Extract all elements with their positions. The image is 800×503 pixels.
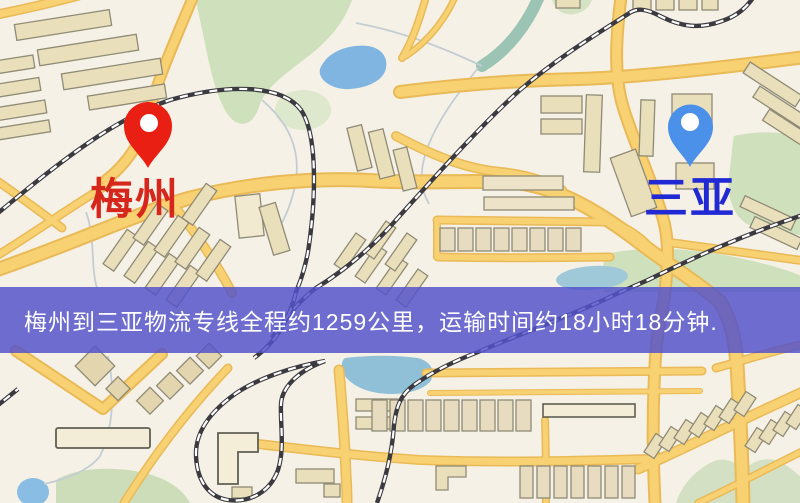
map-canvas[interactable] [0, 0, 800, 503]
origin-label: 梅州 [90, 179, 180, 222]
map-screenshot: 梅州 三亚 梅州到三亚物流专线全程约1259公里，运输时间约18小时18分钟. [0, 0, 800, 503]
route-info-banner: 梅州到三亚物流专线全程约1259公里，运输时间约18小时18分钟. [0, 287, 800, 353]
destination-label: 三亚 [644, 177, 736, 221]
route-info-text: 梅州到三亚物流专线全程约1259公里，运输时间约18小时18分钟. [24, 303, 718, 337]
